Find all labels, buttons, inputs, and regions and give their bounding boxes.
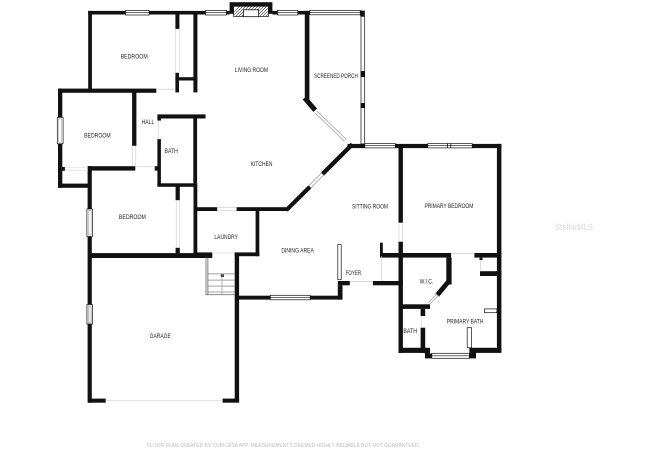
svg-text:BEDROOM: BEDROOM [119,215,146,221]
svg-text:BATH: BATH [403,329,417,335]
svg-text:SCREENED PORCH: SCREENED PORCH [314,74,358,80]
svg-text:GARAGE: GARAGE [150,334,171,340]
svg-text:LAUNDRY: LAUNDRY [214,235,238,241]
svg-text:SITTING ROOM: SITTING ROOM [352,205,388,211]
svg-text:PRIMARY BEDROOM: PRIMARY BEDROOM [424,204,473,210]
svg-text:KITCHEN: KITCHEN [251,162,273,168]
svg-text:W.I.C.: W.I.C. [420,279,434,285]
svg-text:StellarMLS: StellarMLS [555,222,593,233]
svg-text:PRIMARY BATH: PRIMARY BATH [447,319,484,325]
svg-text:HALL: HALL [142,120,155,126]
svg-text:BEDROOM: BEDROOM [121,55,148,61]
svg-text:BATH: BATH [165,149,178,155]
svg-text:BEDROOM: BEDROOM [84,134,111,140]
svg-text:DINING AREA: DINING AREA [281,249,314,255]
svg-text:LIVING ROOM: LIVING ROOM [235,68,268,74]
svg-text:FLOOR PLAN CREATED BY CUBICASA: FLOOR PLAN CREATED BY CUBICASA APP. MEAS… [147,443,420,449]
svg-text:FOYER: FOYER [346,271,362,277]
